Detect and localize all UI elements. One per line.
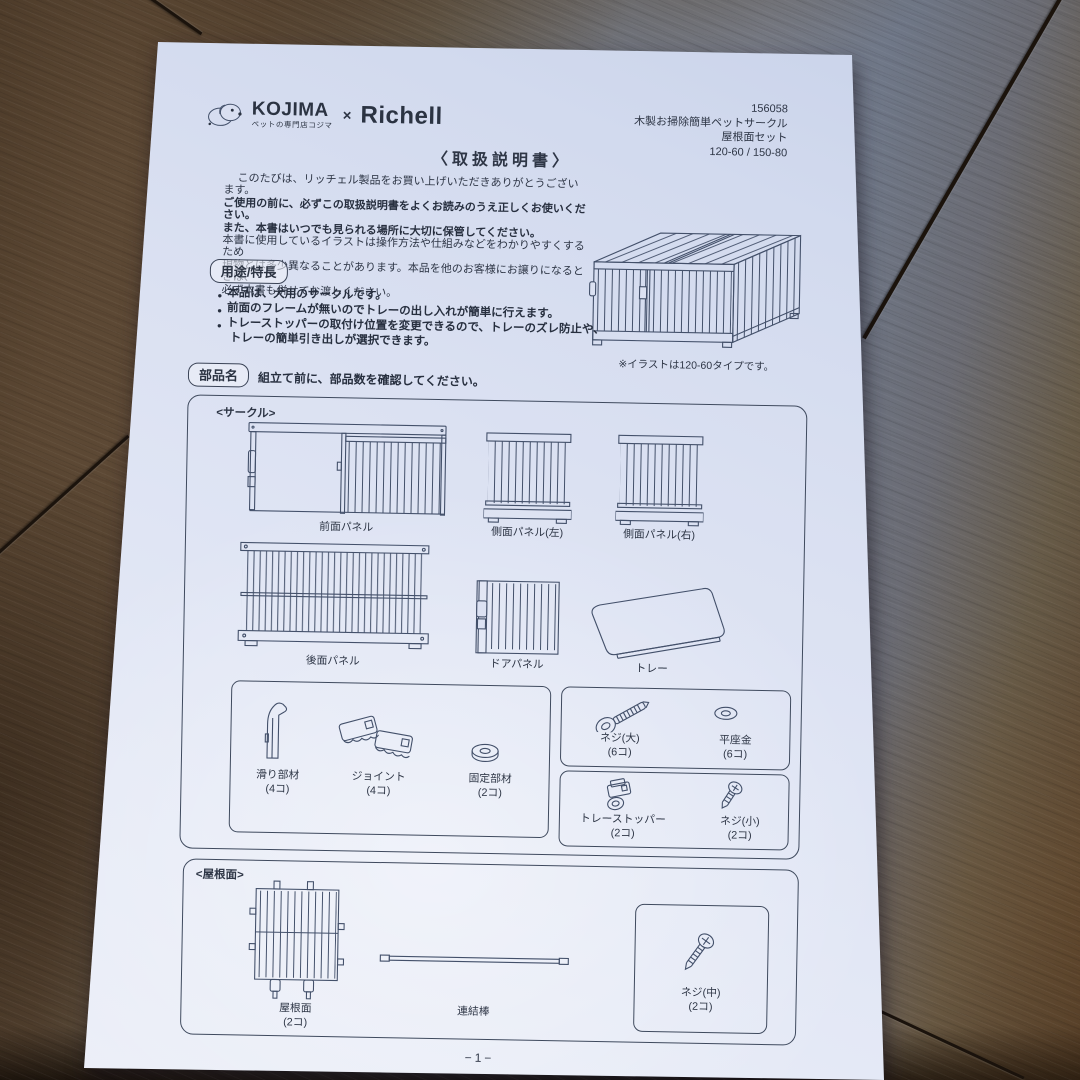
roof-panel-caption: 屋根面 (2コ) bbox=[231, 1000, 359, 1030]
kojima-logo-subtext: ペットの専門店コジマ bbox=[252, 121, 333, 130]
fixing-part-illustration bbox=[469, 742, 501, 765]
features-heading-chip: 用途/特長 bbox=[210, 259, 288, 284]
connecting-rod-illustration bbox=[378, 951, 570, 969]
tray-caption: トレー bbox=[577, 661, 727, 678]
screw-small-icon bbox=[716, 779, 745, 812]
illustration-note: ※イラストは120-60タイプです。 bbox=[586, 356, 806, 375]
part-count: (2コ) bbox=[442, 785, 537, 801]
part-count: (6コ) bbox=[689, 747, 781, 763]
circle-section-label: <サークル> bbox=[216, 404, 275, 421]
part-count: (2コ) bbox=[650, 999, 750, 1015]
part-count: (6コ) bbox=[567, 744, 672, 760]
roof-section-label: <屋根面> bbox=[196, 866, 244, 883]
richell-logo-text: Richell bbox=[360, 102, 443, 132]
slider-part-caption: 滑り部材 (4コ) bbox=[232, 767, 322, 797]
door-panel-illustration bbox=[474, 579, 561, 657]
parts-heading: 部品名 bbox=[188, 362, 249, 387]
part-count: (2コ) bbox=[560, 825, 686, 841]
tray-stopper-caption: トレーストッパー (2コ) bbox=[560, 811, 686, 841]
parts-heading-chip: 部品名 bbox=[188, 362, 249, 387]
screw-medium-icon bbox=[679, 930, 720, 979]
part-count: (2コ) bbox=[694, 828, 786, 844]
washer-icon bbox=[712, 704, 740, 723]
features-heading: 用途/特長 bbox=[210, 259, 288, 284]
fixing-part-caption: 固定部材 (2コ) bbox=[442, 771, 537, 801]
instruction-manual-page: KOJIMA ペットの専門店コジマ × Richell 156058 木製お掃除… bbox=[0, 0, 1080, 1080]
side-panel-left-illustration bbox=[483, 431, 573, 525]
connecting-rod-caption: 連結棒 bbox=[413, 1004, 533, 1020]
side-panel-left-caption: 側面パネル(左) bbox=[483, 525, 571, 541]
kojima-logo: KOJIMA ペットの専門店コジマ bbox=[252, 100, 334, 130]
hardware-box-large-screw: ネジ(大) (6コ) 平座金 (6コ) bbox=[560, 686, 791, 770]
slider-part-illustration bbox=[261, 698, 288, 762]
screw-small-caption: ネジ(小) (2コ) bbox=[694, 814, 786, 844]
kojima-dog-logo-icon bbox=[206, 99, 247, 132]
tray-illustration bbox=[577, 579, 729, 666]
joint-part-illustration bbox=[335, 709, 420, 763]
bullet-icon: ● bbox=[217, 304, 222, 317]
brand-logo-row: KOJIMA ペットの専門店コジマ × Richell bbox=[206, 99, 443, 135]
screw-medium-caption: ネジ(中) (2コ) bbox=[650, 985, 750, 1015]
kojima-logo-text: KOJIMA bbox=[252, 100, 333, 120]
hardware-box-tray-stopper: トレーストッパー (2コ) ネジ(小) (2コ) bbox=[558, 770, 789, 850]
door-panel-caption: ドアパネル bbox=[474, 657, 560, 673]
bullet-icon: ● bbox=[217, 319, 222, 332]
roof-panel-illustration bbox=[248, 879, 346, 1003]
manual-content: KOJIMA ペットの専門店コジマ × Richell 156058 木製お掃除… bbox=[149, 46, 839, 1070]
part-count: (2コ) bbox=[231, 1014, 359, 1030]
roof-screw-box: ネジ(中) (2コ) bbox=[633, 904, 769, 1034]
bullet-icon: ● bbox=[217, 289, 222, 302]
paper-shadow-wrap: KOJIMA ペットの専門店コジマ × Richell 156058 木製お掃除… bbox=[0, 0, 1080, 1080]
back-panel-illustration bbox=[237, 540, 431, 653]
logo-cross-separator: × bbox=[343, 107, 352, 124]
side-panel-right-caption: 側面パネル(右) bbox=[615, 527, 703, 543]
parts-instruction: 組立て前に、部品数を確認してください。 bbox=[258, 369, 485, 390]
page-number: −1− bbox=[149, 1045, 809, 1071]
front-panel-caption: 前面パネル bbox=[246, 519, 446, 537]
side-panel-right-illustration bbox=[615, 433, 705, 527]
screw-large-caption: ネジ(大) (6コ) bbox=[567, 730, 672, 760]
part-count: (4コ) bbox=[232, 781, 322, 797]
features-bullet-list: ● 本品は、犬用のサークルです。 ● 前面のフレームが無いのでトレーの出し入れが… bbox=[217, 287, 606, 352]
screw-large-icon bbox=[590, 692, 653, 733]
front-panel-illustration bbox=[246, 421, 448, 519]
roof-parts-box: <屋根面> 屋根面 (2コ) bbox=[180, 858, 799, 1045]
joint-part-caption: ジョイント (4コ) bbox=[328, 769, 428, 799]
pet-circle-illustration bbox=[586, 216, 808, 358]
tray-stopper-icon bbox=[600, 777, 645, 812]
washer-caption: 平座金 (6コ) bbox=[689, 733, 781, 763]
circle-parts-box: <サークル> 前面パネル bbox=[179, 394, 807, 859]
back-panel-caption: 後面パネル bbox=[237, 652, 429, 670]
photo-scene: KOJIMA ペットの専門店コジマ × Richell 156058 木製お掃除… bbox=[0, 0, 1080, 1080]
plastic-parts-box: 滑り部材 (4コ) bbox=[229, 680, 552, 838]
part-count: (4コ) bbox=[328, 783, 428, 799]
